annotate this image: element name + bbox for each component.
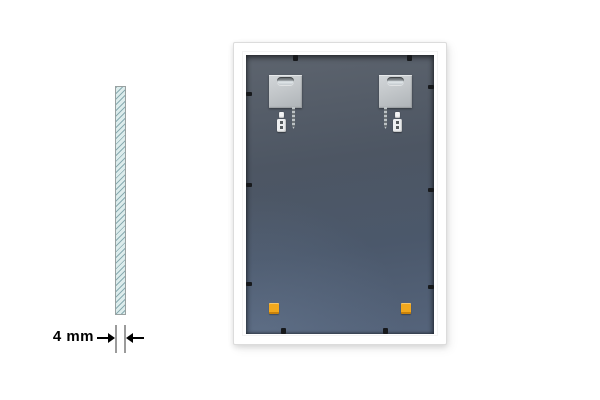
dimension-arrow-right-icon xyxy=(108,333,115,343)
hanger-plate-right xyxy=(379,75,412,108)
retainer-clip xyxy=(246,282,252,286)
hanger-plate-left xyxy=(269,75,302,108)
anchor-body xyxy=(393,119,402,132)
hanger-slot-icon xyxy=(387,77,404,85)
corner-pad-right xyxy=(401,303,411,314)
hanger-slot-icon xyxy=(277,77,294,85)
screw-right xyxy=(384,107,387,129)
retainer-clip xyxy=(293,55,298,61)
retainer-clip xyxy=(428,188,434,192)
wall-anchor-left xyxy=(277,112,286,132)
retainer-clip xyxy=(428,85,434,89)
retainer-clip xyxy=(246,183,252,187)
mirror-frame xyxy=(233,42,447,345)
dimension-arrow-right-shaft xyxy=(97,337,108,339)
thickness-dimension-label: 4 mm xyxy=(38,329,94,345)
wall-anchor-right xyxy=(393,112,402,132)
dimension-extension-line-left xyxy=(115,325,117,353)
screw-left xyxy=(292,107,295,129)
retainer-clip xyxy=(407,55,412,61)
mirror-back-panel xyxy=(246,55,434,334)
product-image: 4 mm xyxy=(0,0,600,400)
anchor-body xyxy=(277,119,286,132)
retainer-clip xyxy=(281,328,286,334)
anchor-cap xyxy=(279,112,284,118)
dimension-arrow-left-shaft xyxy=(133,337,144,339)
corner-pad-left xyxy=(269,303,279,314)
retainer-clip xyxy=(428,285,434,289)
retainer-clip xyxy=(383,328,388,334)
anchor-cap xyxy=(395,112,400,118)
dimension-arrow-left-icon xyxy=(126,333,133,343)
retainer-clip xyxy=(246,92,252,96)
glass-cross-section xyxy=(115,86,126,315)
